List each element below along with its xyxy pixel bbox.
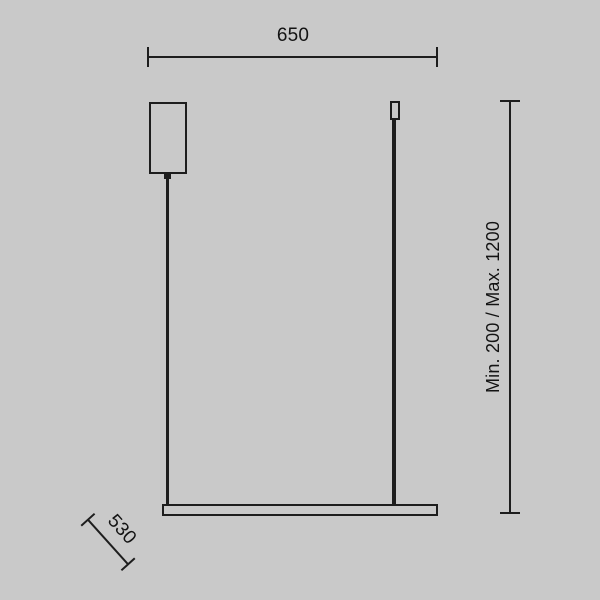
depth-dimension-group: 530 bbox=[87, 519, 129, 565]
height-dimension-tick-bottom bbox=[500, 512, 520, 514]
depth-dimension-label: 530 bbox=[94, 501, 149, 559]
lamp-suspension-wire-left bbox=[166, 178, 169, 506]
height-dimension-line bbox=[509, 101, 511, 513]
dimension-drawing-canvas: 650 Min. 200 / Max. 1200 530 bbox=[0, 0, 600, 600]
top-width-dimension-tick-right bbox=[436, 47, 438, 67]
lamp-suspension-wire-right bbox=[392, 120, 396, 506]
height-dimension-label: Min. 200 / Max. 1200 bbox=[483, 221, 503, 393]
top-width-dimension-tick-left bbox=[147, 47, 149, 67]
height-dimension-tick-top bbox=[500, 100, 520, 102]
lamp-ceiling-fitting-right bbox=[390, 101, 400, 120]
top-width-dimension-line bbox=[148, 56, 438, 58]
lamp-canopy bbox=[149, 102, 187, 174]
top-width-dimension-label: 650 bbox=[148, 26, 438, 46]
lamp-horizontal-bar bbox=[162, 504, 438, 516]
